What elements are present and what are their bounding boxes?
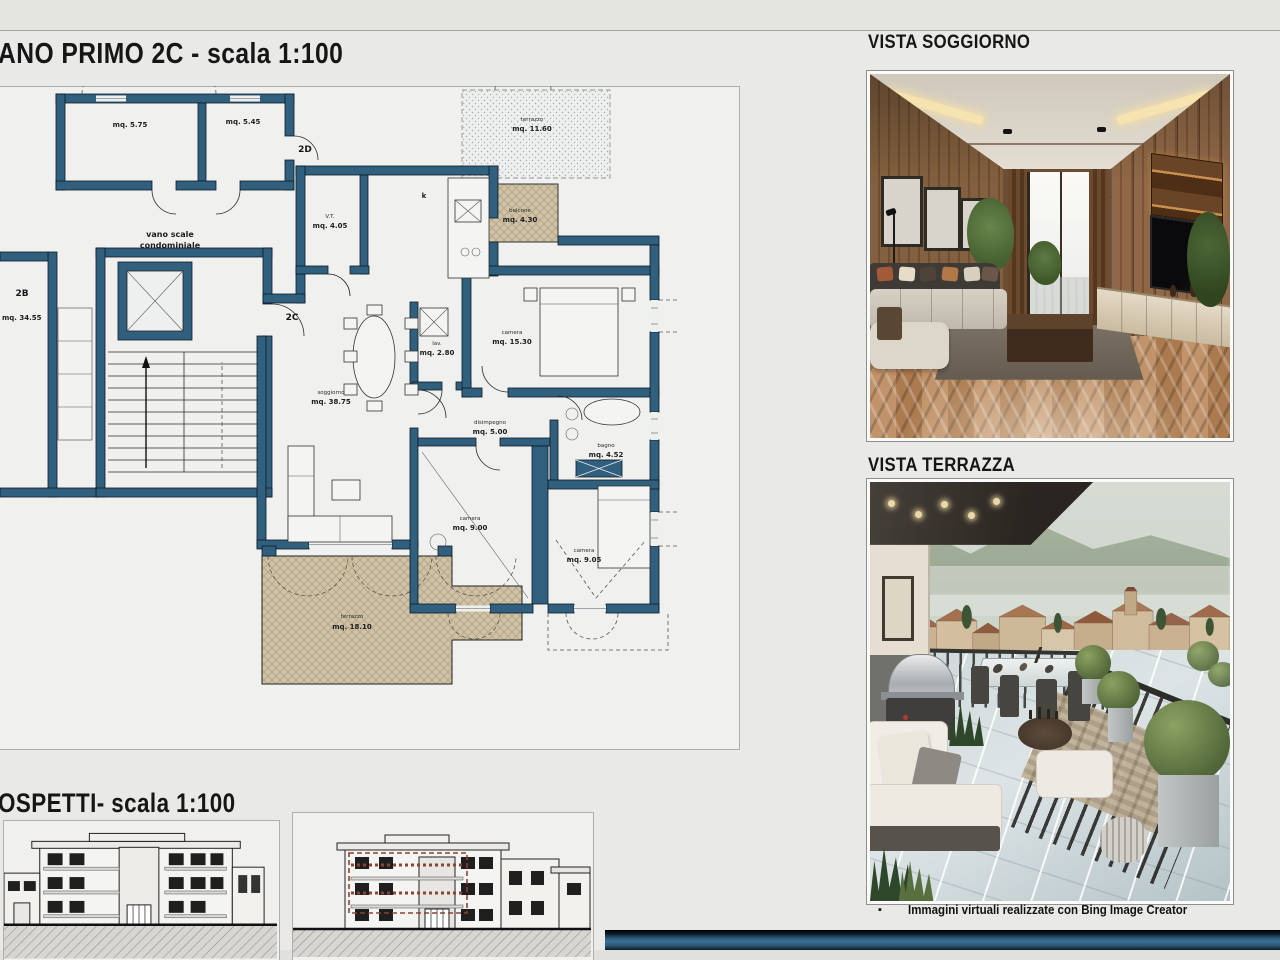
room-area: mq. 2.80 <box>420 349 455 357</box>
plan-title-text: ANO PRIMO 2C - scala 1:100 <box>0 38 343 71</box>
plant <box>967 198 1014 271</box>
stairwell-label-1: vano scale <box>146 230 194 239</box>
pillow <box>920 266 937 282</box>
pillow <box>941 266 958 281</box>
room-area: mq. 5.00 <box>473 428 508 436</box>
coffee-table-top <box>1007 314 1093 329</box>
room-name: bagno <box>597 443 615 449</box>
credit-text: Immagini virtuali realizzate con Bing Im… <box>908 903 1187 917</box>
wall-art <box>924 187 961 251</box>
bottle <box>1029 710 1032 719</box>
room-area: mq. 4.52 <box>589 451 624 459</box>
room-area: mq. 9.05 <box>567 556 602 564</box>
living-room-title-text: VISTA SOGGIORNO <box>868 32 1030 54</box>
unit-label-2b: 2B <box>15 289 28 299</box>
bbq-knob <box>903 715 908 720</box>
room-name: terrazzo <box>341 614 364 620</box>
elevation-drawing-side <box>293 813 591 957</box>
plant <box>1028 241 1060 285</box>
room-area: mq. 18.10 <box>332 623 372 631</box>
plate <box>992 664 1003 672</box>
photo-terrace-frame <box>866 478 1234 905</box>
dining-chair <box>1000 675 1020 717</box>
outdoor-sofa-base <box>870 826 1000 851</box>
stairwell-label-2: condominiale <box>140 241 201 250</box>
plan-section-title: ANO PRIMO 2C - scala 1:100 <box>0 38 404 71</box>
room-area: mq. 9.00 <box>453 524 488 532</box>
planter <box>1108 708 1133 742</box>
stairwell <box>108 262 258 472</box>
plate <box>1044 665 1055 673</box>
room-name: camera <box>460 516 481 522</box>
vase <box>1170 285 1176 297</box>
downlight <box>993 498 1000 505</box>
elevations-section-title: OSPETTI- scala 1:100 <box>0 788 284 819</box>
photo-living-room <box>870 74 1230 438</box>
elevation-panel-2 <box>292 812 594 960</box>
room-name: camera <box>502 330 523 336</box>
bottle <box>1038 707 1041 719</box>
terrace-view-title: VISTA TERRAZZA <box>868 455 1035 477</box>
elevation-drawing-front <box>4 821 277 959</box>
bottle <box>1047 709 1050 719</box>
living-room-view-title: VISTA SOGGIORNO <box>868 32 1052 54</box>
unit-label-2c: 2C <box>286 313 299 323</box>
room-name: disimpegno <box>474 420 507 426</box>
room-name: camera <box>574 548 595 554</box>
plant <box>1187 212 1230 307</box>
knit-pouf <box>1100 817 1147 863</box>
pillow <box>898 266 915 281</box>
kitchen-label: k <box>422 192 427 200</box>
topiary-ball <box>1097 671 1140 713</box>
room-area: mq. 15.30 <box>492 338 532 346</box>
wall-picture <box>882 576 914 641</box>
room-name: balcone <box>509 208 531 214</box>
room-name: soggiorno <box>317 390 345 396</box>
ceiling-spotlight <box>1097 127 1106 132</box>
pillow <box>963 266 980 281</box>
room-area: mq. 11.60 <box>512 125 552 133</box>
downlight <box>888 500 895 507</box>
room-area: mq. 4.30 <box>503 216 538 224</box>
photo-living-room-frame <box>866 70 1234 442</box>
credit-bullet-icon: ▪ <box>878 904 882 916</box>
bottle <box>1055 711 1058 719</box>
room-area: mq. 4.05 <box>313 222 348 230</box>
drinks-table <box>1018 717 1072 751</box>
downlight <box>941 501 948 508</box>
room-area: mq. 38.75 <box>311 398 351 406</box>
floor-plan-drawing: mq. 5.75 mq. 5.45 V.T. mq. 4.05 terrazzo… <box>0 86 740 746</box>
room-name: terrazzo <box>521 117 544 123</box>
topiary-ball <box>1208 662 1230 687</box>
elevation-panel-1 <box>3 820 280 960</box>
coffee-table <box>1007 314 1093 361</box>
room-area: mq. 5.45 <box>226 118 261 126</box>
downlight <box>968 512 975 519</box>
downlight <box>915 511 922 518</box>
pillow <box>877 266 894 281</box>
ceiling-spotlight <box>1003 129 1012 134</box>
unit-label-2d: 2D <box>298 145 312 155</box>
credit-line: ▪ Immagini virtuali realizzate con Bing … <box>868 903 1234 917</box>
poster-sheet: ANO PRIMO 2C - scala 1:100 <box>0 0 1280 960</box>
room-area: mq. 5.75 <box>113 121 148 129</box>
planter-large <box>1158 775 1219 846</box>
dining-chair <box>971 666 989 704</box>
elevations-title-text: OSPETTI- scala 1:100 <box>0 788 235 819</box>
room-area: mq. 34.55 <box>2 314 42 322</box>
pillow <box>981 266 998 282</box>
side-table <box>877 307 902 340</box>
topiary-ball-large <box>1144 700 1230 784</box>
plate <box>1018 663 1028 671</box>
room-name: V.T. <box>325 214 335 220</box>
photo-terrace <box>870 482 1230 901</box>
terrace-title-text: VISTA TERRAZZA <box>868 455 1015 477</box>
top-margin-band <box>0 0 1280 31</box>
ottoman <box>1036 750 1114 798</box>
bottom-accent-bar <box>605 930 1280 950</box>
room-name: lav. <box>432 341 442 347</box>
